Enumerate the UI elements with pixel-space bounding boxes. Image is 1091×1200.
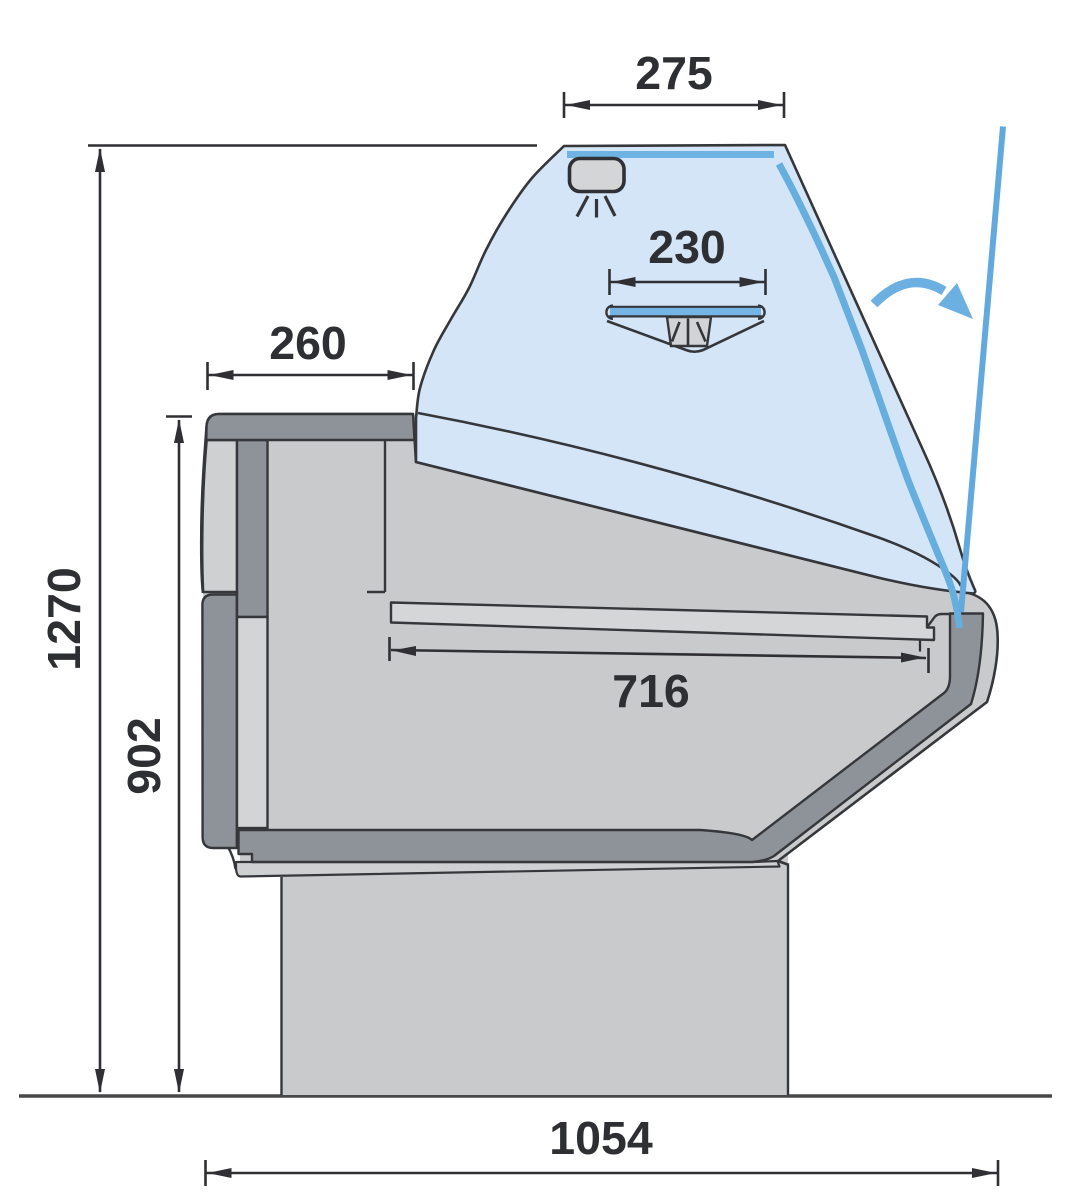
- svg-text:1054: 1054: [549, 1112, 653, 1164]
- svg-text:902: 902: [118, 717, 170, 795]
- svg-text:1270: 1270: [38, 567, 90, 670]
- svg-text:260: 260: [269, 317, 347, 369]
- svg-text:716: 716: [612, 665, 690, 717]
- svg-text:230: 230: [648, 221, 726, 273]
- svg-text:275: 275: [635, 47, 713, 99]
